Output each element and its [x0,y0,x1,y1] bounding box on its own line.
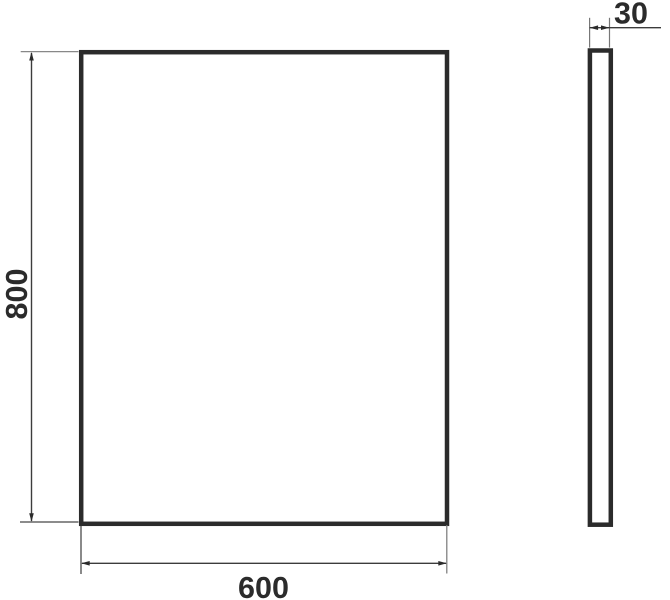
svg-text:800: 800 [0,269,34,320]
svg-text:600: 600 [238,571,289,600]
svg-text:30: 30 [614,0,648,31]
